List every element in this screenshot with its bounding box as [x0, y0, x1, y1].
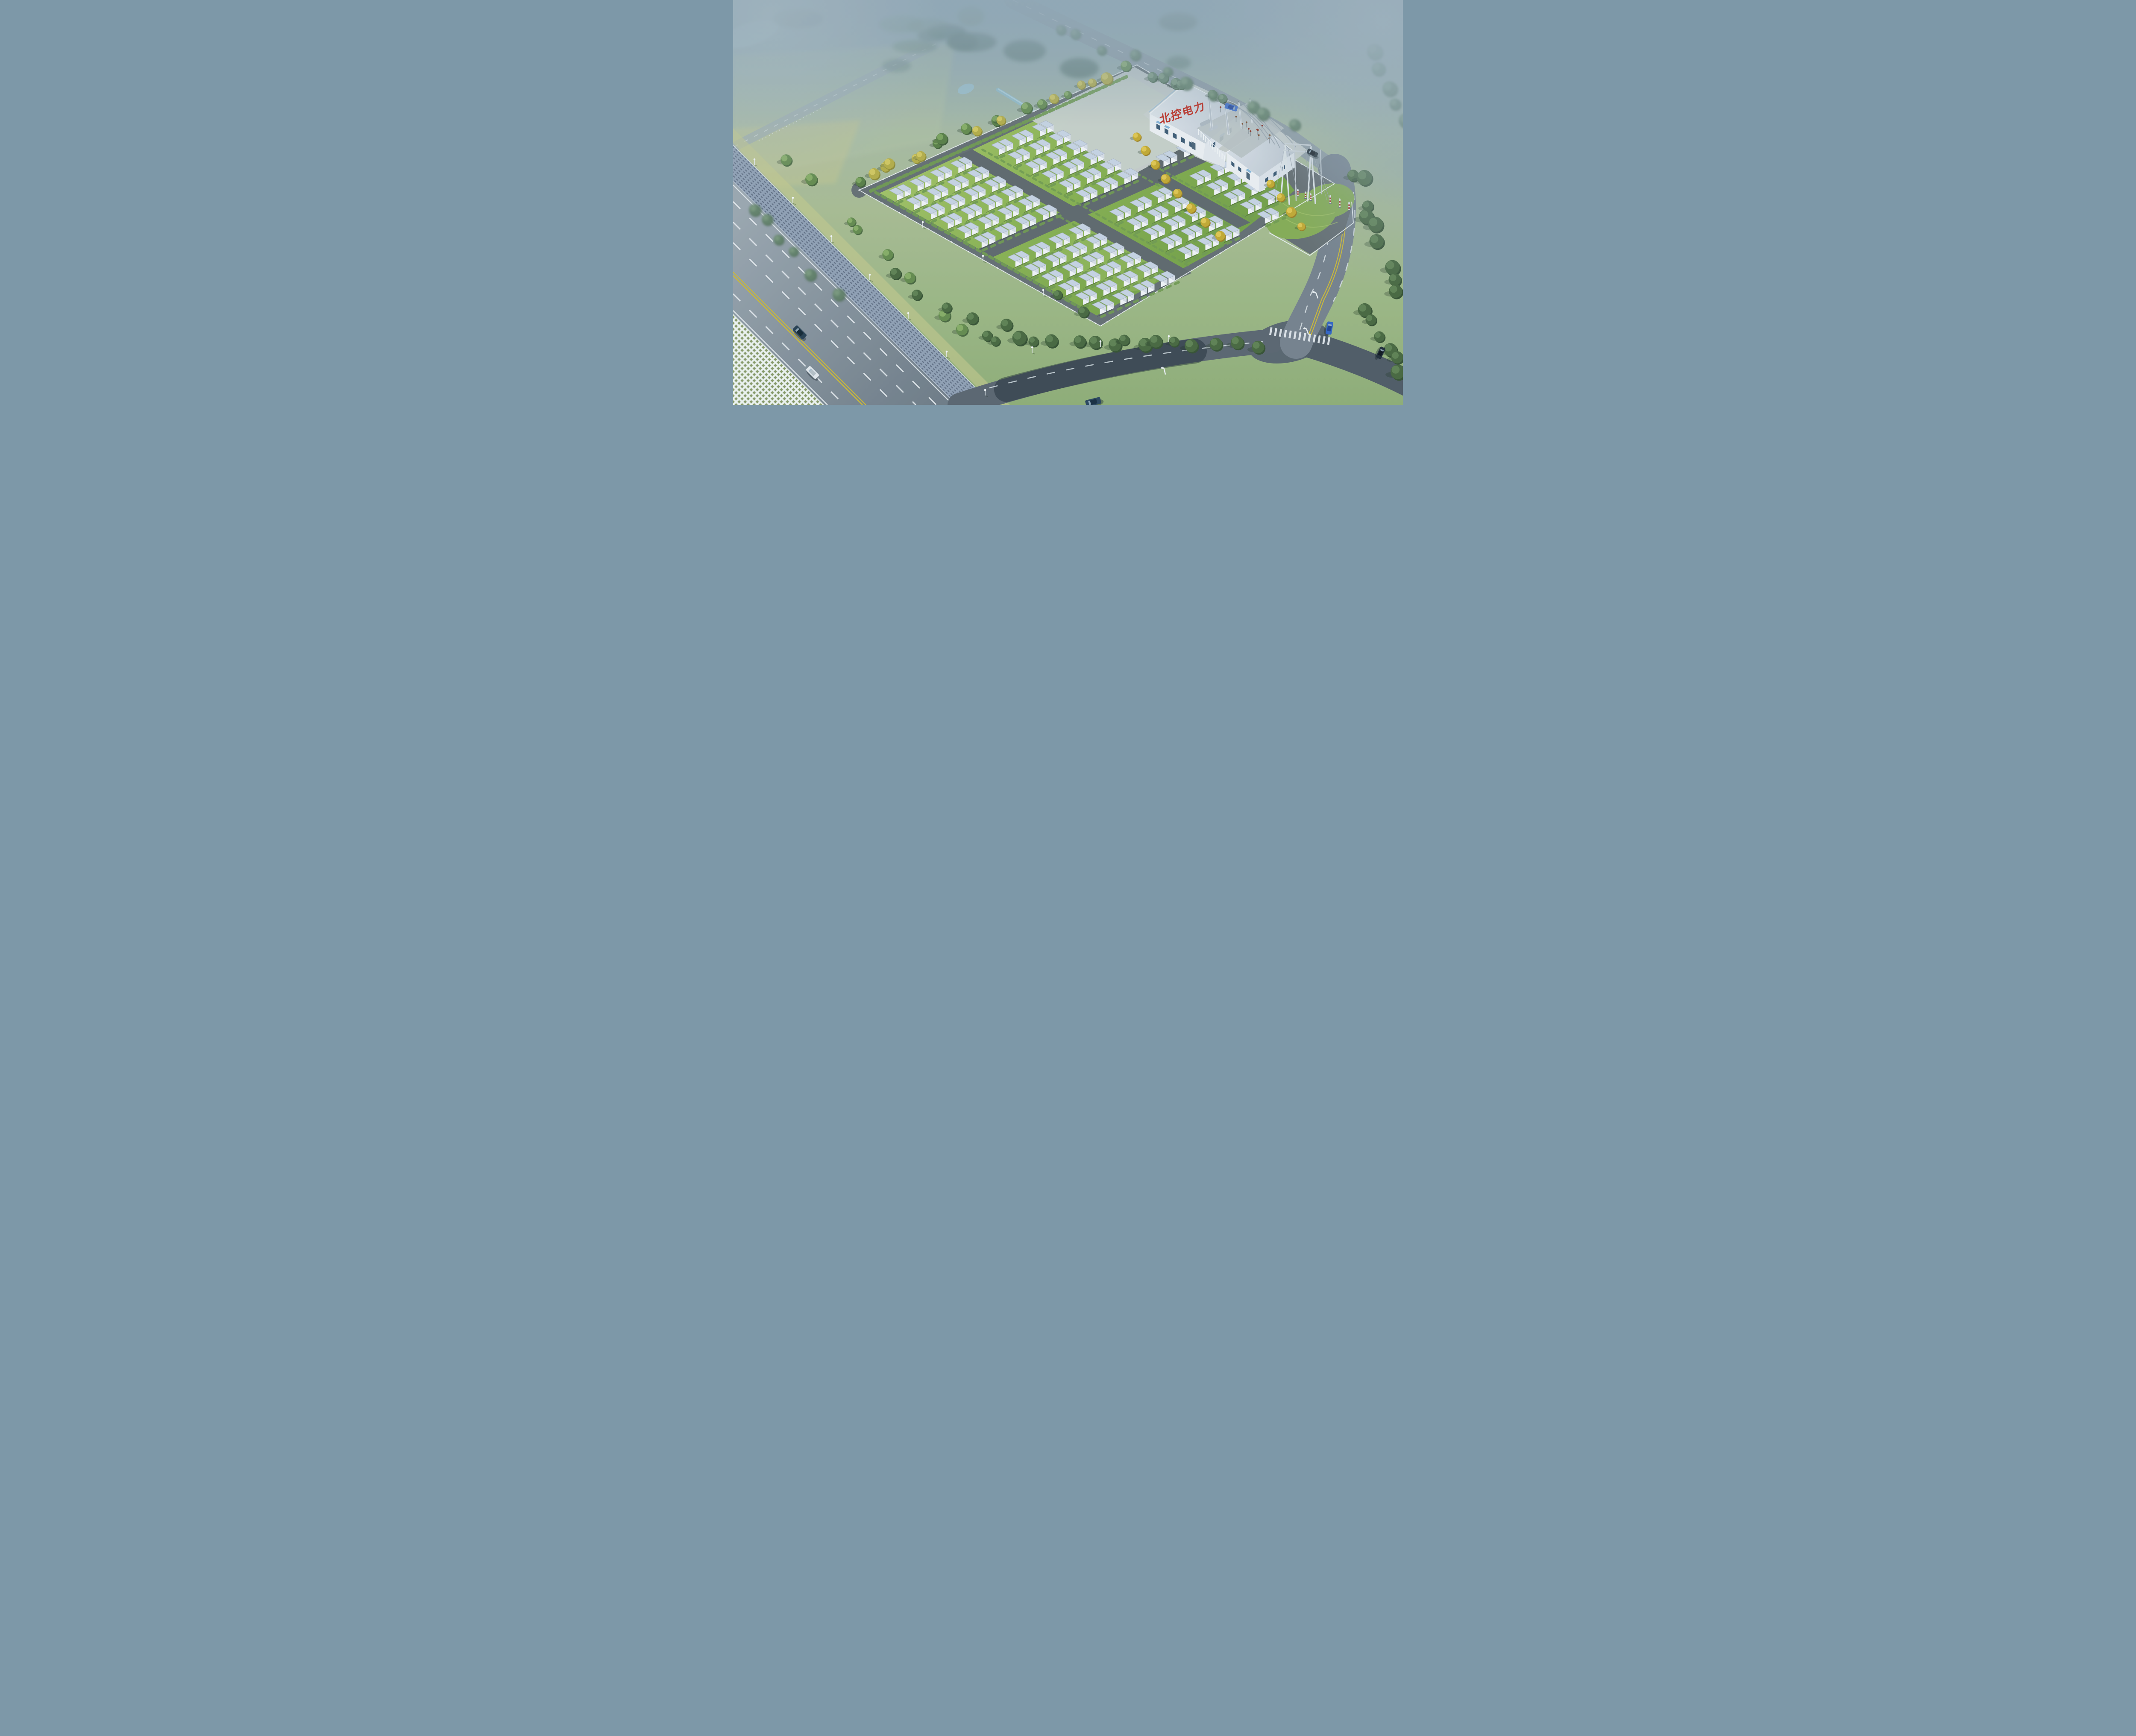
mist-overlay — [733, 0, 1403, 405]
aerial-site-rendering: 北控电力 — [733, 0, 1403, 405]
atmosphere-tint — [733, 0, 1403, 405]
